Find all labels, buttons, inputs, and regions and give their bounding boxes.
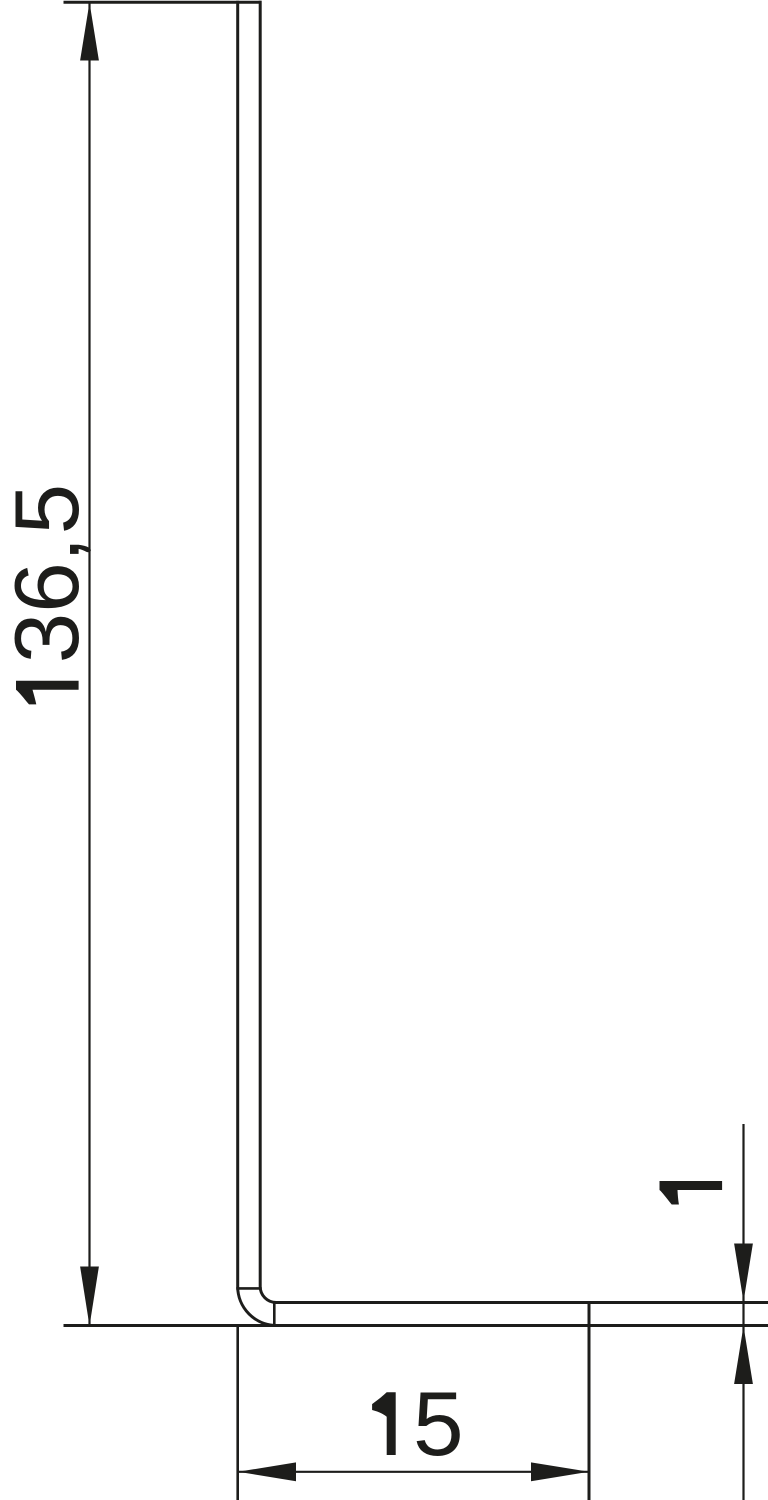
svg-text:5: 5 bbox=[0, 484, 98, 535]
svg-text:5: 5 bbox=[413, 1374, 464, 1475]
svg-text:36: 36 bbox=[0, 562, 98, 663]
